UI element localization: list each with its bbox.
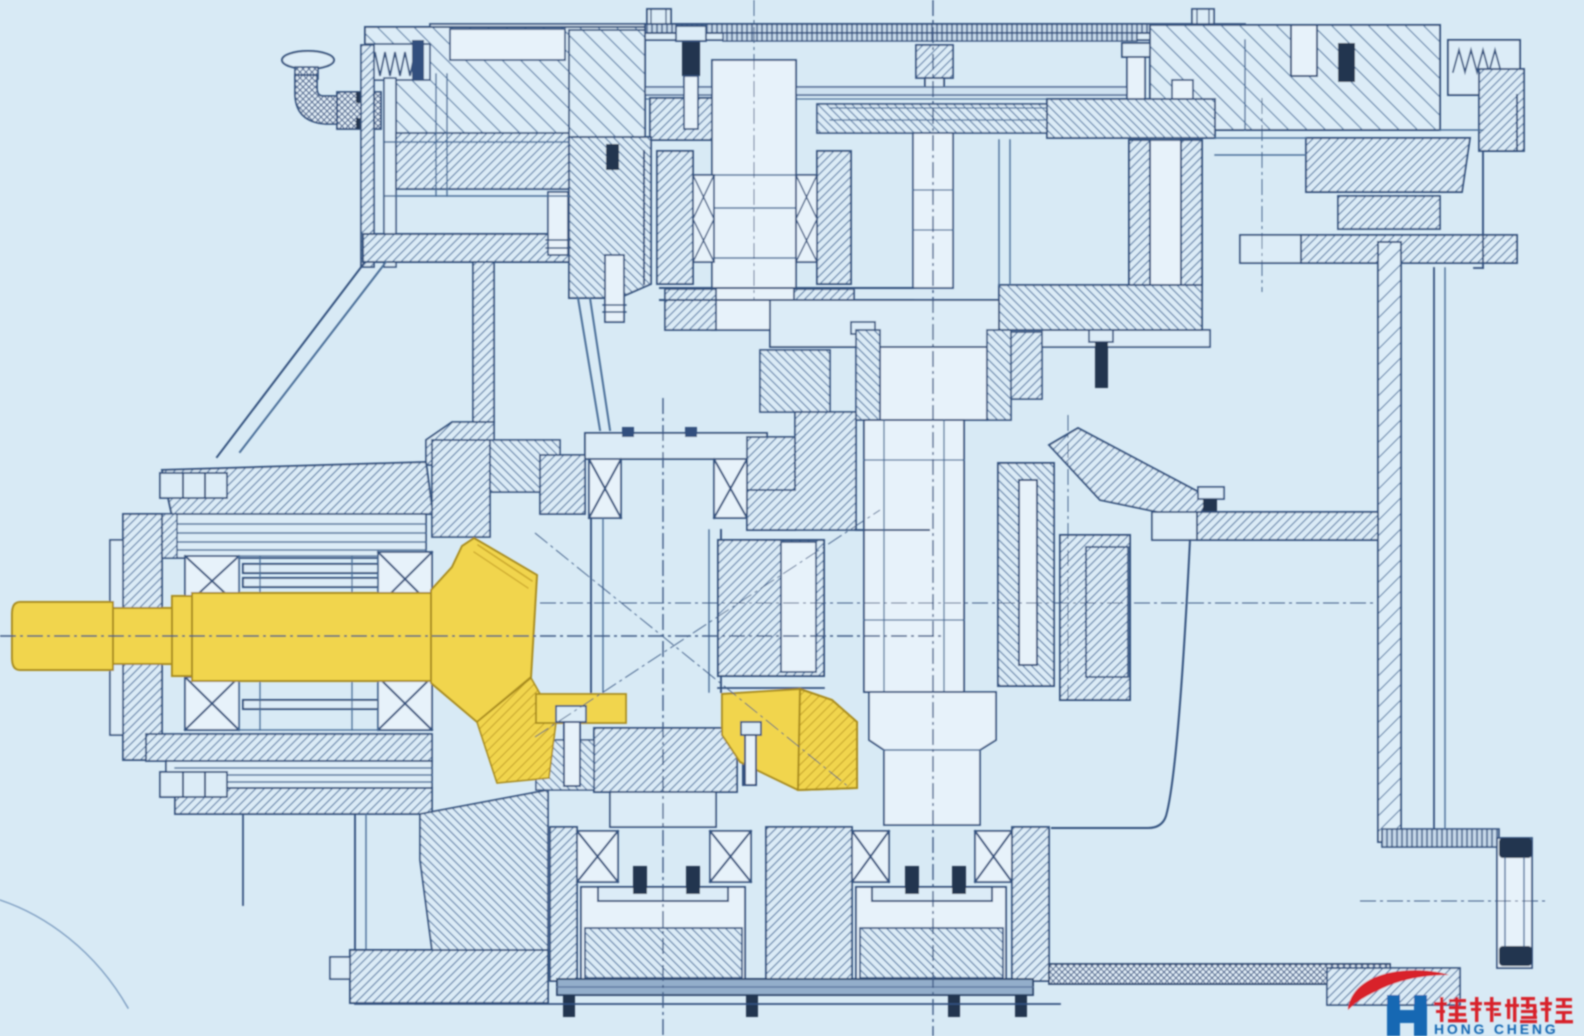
svg-text:HONG CHENG: HONG CHENG (1434, 1021, 1558, 1036)
